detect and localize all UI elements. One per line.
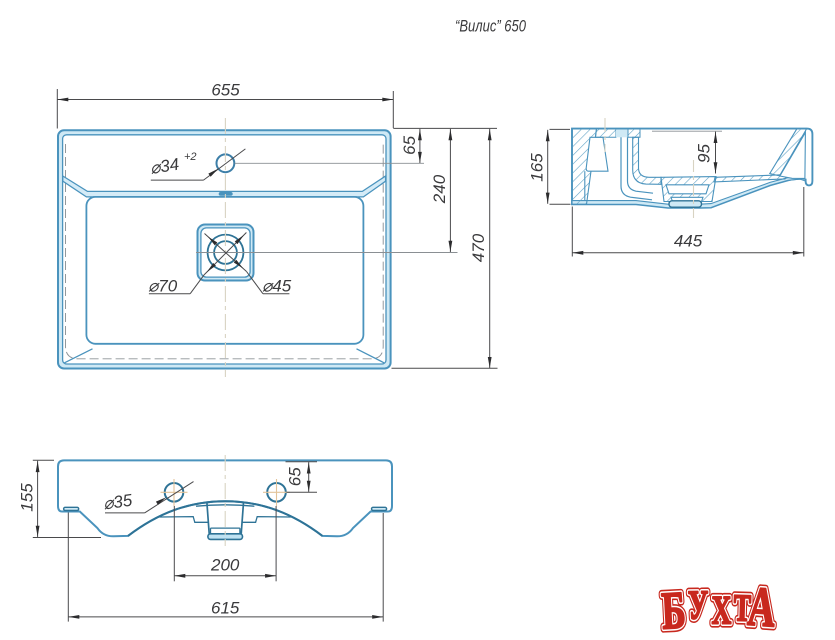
svg-text:“Вилис” 650: “Вилис” 650 (455, 18, 527, 36)
svg-text:445: 445 (674, 232, 703, 251)
svg-text:⌀45: ⌀45 (262, 277, 292, 296)
svg-text:65: 65 (400, 135, 419, 154)
svg-text:+2: +2 (184, 151, 197, 163)
svg-text:165: 165 (528, 153, 547, 182)
svg-text:⌀70: ⌀70 (148, 277, 178, 296)
svg-text:95: 95 (695, 144, 714, 163)
svg-text:155: 155 (18, 483, 37, 512)
svg-text:Б: Б (660, 581, 687, 640)
svg-text:240: 240 (430, 174, 449, 204)
svg-text:655: 655 (211, 81, 240, 100)
svg-text:У: У (688, 582, 709, 628)
svg-text:Х: Х (712, 590, 732, 633)
svg-text:А: А (746, 576, 778, 640)
svg-text:470: 470 (469, 233, 488, 262)
svg-text:615: 615 (211, 599, 240, 618)
svg-text:200: 200 (210, 556, 240, 575)
svg-text:65: 65 (286, 467, 305, 486)
